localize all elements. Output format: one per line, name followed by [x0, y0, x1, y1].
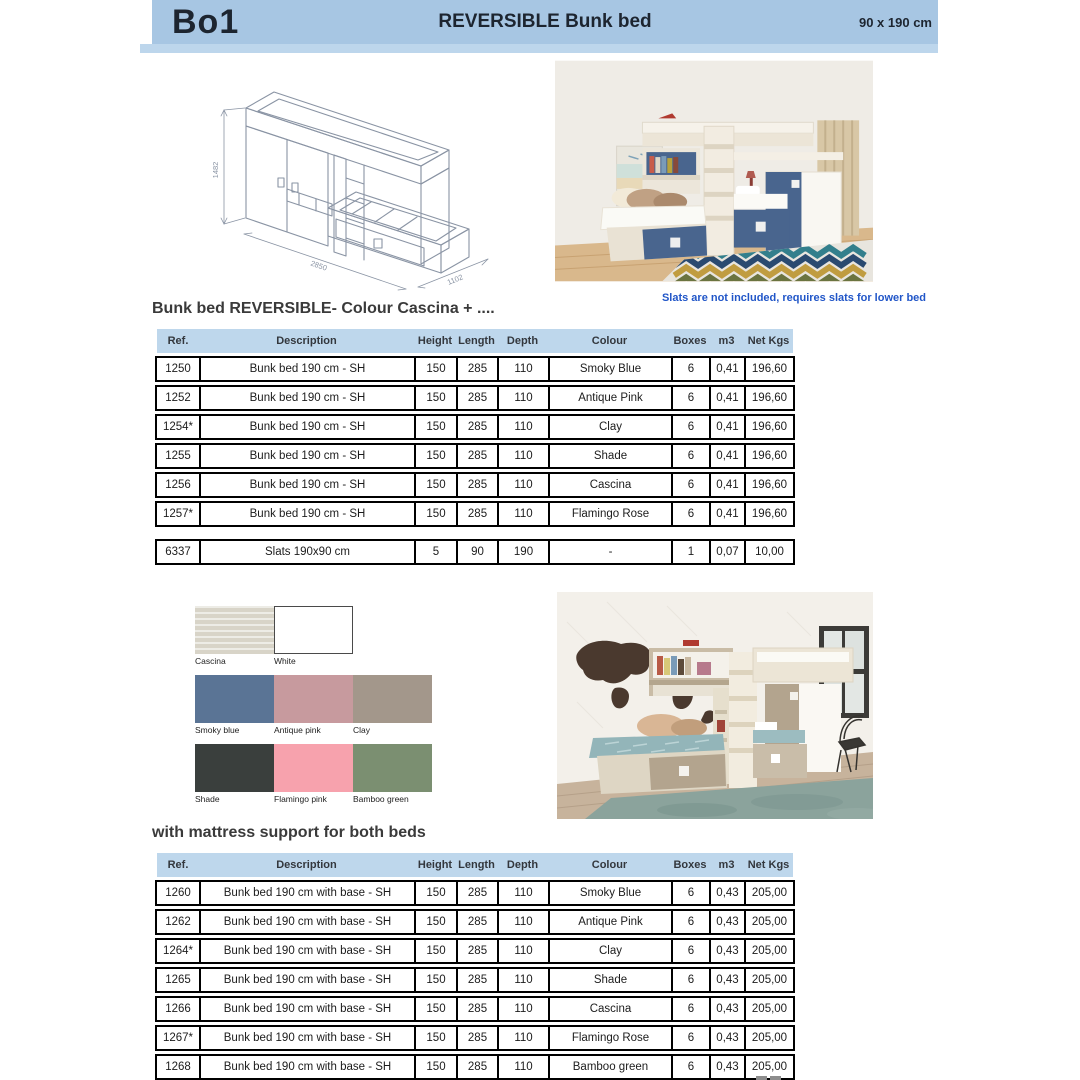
swatch-label: Antique pink [274, 725, 353, 735]
table-cell: Bunk bed 190 cm - SH [199, 445, 414, 467]
table-cell: Clay [548, 416, 671, 438]
table-cell: Bunk bed 190 cm - SH [199, 503, 414, 525]
table-cell: 0,43 [709, 1027, 744, 1049]
table-cell: 6 [671, 416, 709, 438]
dim-height-label: 1482 [211, 162, 220, 179]
table-cell: Flamingo Rose [548, 503, 671, 525]
swatch-row: Smoky blueAntique pinkClay [195, 675, 435, 735]
table-cell: 1262 [157, 911, 199, 933]
table-cell: 1252 [157, 387, 199, 409]
table-cell: 1254* [157, 416, 199, 438]
section-title-reversible: Bunk bed REVERSIBLE- Colour Cascina + ..… [152, 300, 495, 318]
swatch-color [274, 606, 353, 654]
table-cell: 90 [456, 541, 497, 563]
table-row: 1265Bunk bed 190 cm with base - SH150285… [155, 967, 795, 993]
column-header: Depth [497, 859, 548, 871]
table-cell: Bunk bed 190 cm with base - SH [199, 998, 414, 1020]
table-cell: 150 [414, 1056, 456, 1078]
section-title-mattress-support: with mattress support for both beds [152, 824, 426, 842]
column-header: Description [199, 859, 414, 871]
table-cell: 110 [497, 445, 548, 467]
table-row: 1267*Bunk bed 190 cm with base - SH15028… [155, 1025, 795, 1051]
table-row: 1260Bunk bed 190 cm with base - SH150285… [155, 880, 795, 906]
table-row: 1250Bunk bed 190 cm - SH150285110Smoky B… [155, 356, 795, 382]
product-photo-room-clay [557, 592, 873, 819]
table-cell: 285 [456, 940, 497, 962]
column-header: Depth [497, 335, 548, 347]
table-cell: 196,60 [744, 503, 793, 525]
column-header: Colour [548, 859, 671, 871]
table-cell: 110 [497, 474, 548, 496]
swatch-color [195, 744, 274, 792]
header-bar: Bo1 REVERSIBLE Bunk bed 90 x 190 cm [152, 0, 938, 44]
column-header: Boxes [671, 859, 709, 871]
swatch-bamboo-green: Bamboo green [353, 744, 432, 804]
table-cell: 6 [671, 969, 709, 991]
table-cell: 6 [671, 387, 709, 409]
table-cell: 150 [414, 503, 456, 525]
column-header: Length [456, 335, 497, 347]
column-header: Height [414, 859, 456, 871]
table-cell: 150 [414, 940, 456, 962]
column-header: Ref. [157, 335, 199, 347]
swatch-cascina: Cascina [195, 606, 274, 666]
column-header: Ref. [157, 859, 199, 871]
table-cell: 285 [456, 998, 497, 1020]
table-cell: 0,41 [709, 387, 744, 409]
swatch-clay: Clay [353, 675, 432, 735]
table-cell: Bunk bed 190 cm with base - SH [199, 882, 414, 904]
table-cell: Bamboo green [548, 1056, 671, 1078]
table-cell: Cascina [548, 474, 671, 496]
swatch-label: Bamboo green [353, 794, 432, 804]
table-cell: 1268 [157, 1056, 199, 1078]
table-cell: 6 [671, 998, 709, 1020]
table-gap [155, 527, 797, 536]
table-row: 1255Bunk bed 190 cm - SH150285110Shade60… [155, 443, 795, 469]
table-cell: 6 [671, 474, 709, 496]
table-row: 1264*Bunk bed 190 cm with base - SH15028… [155, 938, 795, 964]
table-row: 6337Slats 190x90 cm590190-10,0710,00 [155, 539, 795, 565]
table-cell: 205,00 [744, 940, 793, 962]
swatch-shade: Shade [195, 744, 274, 804]
table-cell: 110 [497, 387, 548, 409]
swatch-label: Smoky blue [195, 725, 274, 735]
table-cell: 110 [497, 1027, 548, 1049]
table-cell: Bunk bed 190 cm with base - SH [199, 969, 414, 991]
column-header: m3 [709, 859, 744, 871]
spec-table-with-base: Ref.DescriptionHeightLengthDepthColourBo… [155, 853, 797, 1080]
table-cell: 6337 [157, 541, 199, 563]
dim-length-label: 2850 [309, 259, 328, 273]
table-cell: 0,41 [709, 358, 744, 380]
swatch-label: Clay [353, 725, 432, 735]
swatch-color [195, 606, 274, 654]
table-cell: 285 [456, 416, 497, 438]
table-cell: 1 [671, 541, 709, 563]
swatch-label: Flamingo pink [274, 794, 353, 804]
page-title: REVERSIBLE Bunk bed [152, 11, 938, 33]
table-cell: 6 [671, 445, 709, 467]
colour-swatches: CascinaWhiteSmoky blueAntique pinkClaySh… [195, 606, 435, 813]
table-cell: 285 [456, 503, 497, 525]
table-cell: 1264* [157, 940, 199, 962]
table-cell: 150 [414, 911, 456, 933]
table-row: 1266Bunk bed 190 cm with base - SH150285… [155, 996, 795, 1022]
table-cell: 285 [456, 445, 497, 467]
table-cell: 6 [671, 882, 709, 904]
table-cell: Bunk bed 190 cm with base - SH [199, 1056, 414, 1078]
table-cell: 285 [456, 387, 497, 409]
column-header: Description [199, 335, 414, 347]
table-cell: 285 [456, 1027, 497, 1049]
table-cell: Antique Pink [548, 911, 671, 933]
table-cell: 110 [497, 940, 548, 962]
table-cell: - [548, 541, 671, 563]
table-cell: Bunk bed 190 cm - SH [199, 387, 414, 409]
table-cell: 1250 [157, 358, 199, 380]
table-cell: 190 [497, 541, 548, 563]
table-row: 1268Bunk bed 190 cm with base - SH150285… [155, 1054, 795, 1080]
table-cell: 110 [497, 969, 548, 991]
table-cell: 0,43 [709, 969, 744, 991]
swatch-smoky-blue: Smoky blue [195, 675, 274, 735]
table-cell: 196,60 [744, 416, 793, 438]
table-cell: 6 [671, 1056, 709, 1078]
table-cell: Slats 190x90 cm [199, 541, 414, 563]
swatch-row: ShadeFlamingo pinkBamboo green [195, 744, 435, 804]
table-cell: 1260 [157, 882, 199, 904]
table-cell: 150 [414, 474, 456, 496]
table-cell: 150 [414, 416, 456, 438]
table-cell: 6 [671, 358, 709, 380]
column-header: Net Kgs [744, 335, 793, 347]
swatch-label: Shade [195, 794, 274, 804]
table-cell: 205,00 [744, 998, 793, 1020]
table-row: 1257*Bunk bed 190 cm - SH150285110Flamin… [155, 501, 795, 527]
table-row: 1256Bunk bed 190 cm - SH150285110Cascina… [155, 472, 795, 498]
table-cell: 150 [414, 445, 456, 467]
table-cell: 285 [456, 358, 497, 380]
table-cell: Shade [548, 445, 671, 467]
table-cell: Bunk bed 190 cm - SH [199, 474, 414, 496]
table-cell: Shade [548, 969, 671, 991]
table-cell: 196,60 [744, 445, 793, 467]
product-photo-room-blue [555, 60, 873, 282]
table-row: 1254*Bunk bed 190 cm - SH150285110Clay60… [155, 414, 795, 440]
table-cell: Flamingo Rose [548, 1027, 671, 1049]
table-cell: Bunk bed 190 cm with base - SH [199, 1027, 414, 1049]
swatch-color [353, 675, 432, 723]
table-cell: 110 [497, 882, 548, 904]
swatch-color [274, 675, 353, 723]
column-header: Height [414, 335, 456, 347]
table-cell: 1265 [157, 969, 199, 991]
swatch-flamingo-pink: Flamingo pink [274, 744, 353, 804]
table-cell: 205,00 [744, 882, 793, 904]
table-cell: 1255 [157, 445, 199, 467]
bed-size: 90 x 190 cm [859, 15, 938, 30]
table-cell: 110 [497, 1056, 548, 1078]
table-cell: 285 [456, 911, 497, 933]
table-cell: 285 [456, 1056, 497, 1078]
table-cell: 285 [456, 882, 497, 904]
table-cell: 150 [414, 387, 456, 409]
table-cell: 150 [414, 969, 456, 991]
table-cell: 6 [671, 503, 709, 525]
table-cell: Smoky Blue [548, 882, 671, 904]
table-cell: 6 [671, 911, 709, 933]
table-cell: 0,43 [709, 998, 744, 1020]
table-cell: 205,00 [744, 1027, 793, 1049]
column-header: m3 [709, 335, 744, 347]
table-cell: 150 [414, 882, 456, 904]
table-row: 1262Bunk bed 190 cm with base - SH150285… [155, 909, 795, 935]
table-cell: 205,00 [744, 969, 793, 991]
swatch-antique-pink: Antique pink [274, 675, 353, 735]
table-cell: 285 [456, 969, 497, 991]
table-cell: 110 [497, 416, 548, 438]
table-cell: Bunk bed 190 cm with base - SH [199, 940, 414, 962]
swatch-label: White [274, 656, 353, 666]
swatch-label: Cascina [195, 656, 274, 666]
table-cell: 0,41 [709, 445, 744, 467]
table-cell: 0,41 [709, 416, 744, 438]
table-row: 1252Bunk bed 190 cm - SH150285110Antique… [155, 385, 795, 411]
table-cell: 196,60 [744, 358, 793, 380]
table-cell: 1266 [157, 998, 199, 1020]
table-cell: 150 [414, 998, 456, 1020]
spec-sheet-page: Bo1 REVERSIBLE Bunk bed 90 x 190 cm [0, 0, 1080, 1080]
table-cell: 110 [497, 358, 548, 380]
swatch-white: White [274, 606, 353, 666]
table-cell: Cascina [548, 998, 671, 1020]
table-header-row: Ref.DescriptionHeightLengthDepthColourBo… [157, 329, 793, 353]
table-cell: 150 [414, 1027, 456, 1049]
table-cell: 0,41 [709, 503, 744, 525]
table-cell: 10,00 [744, 541, 793, 563]
table-cell: Bunk bed 190 cm - SH [199, 358, 414, 380]
table-cell: 110 [497, 998, 548, 1020]
table-cell: 285 [456, 474, 497, 496]
header-underline [140, 44, 938, 53]
table-cell: 110 [497, 911, 548, 933]
table-cell: Clay [548, 940, 671, 962]
table-cell: 6 [671, 940, 709, 962]
column-header: Colour [548, 335, 671, 347]
table-cell: 0,07 [709, 541, 744, 563]
swatch-color [195, 675, 274, 723]
table-cell: Antique Pink [548, 387, 671, 409]
table-cell: Smoky Blue [548, 358, 671, 380]
column-header: Net Kgs [744, 859, 793, 871]
table-cell: 0,41 [709, 474, 744, 496]
table-cell: Bunk bed 190 cm - SH [199, 416, 414, 438]
table-cell: 1256 [157, 474, 199, 496]
table-cell: 1257* [157, 503, 199, 525]
table-cell: 5 [414, 541, 456, 563]
swatch-color [353, 744, 432, 792]
column-header: Boxes [671, 335, 709, 347]
technical-drawing: 1482 2850 1102 [166, 56, 504, 292]
table-cell: 196,60 [744, 474, 793, 496]
swatch-row: CascinaWhite [195, 606, 435, 666]
swatch-color [274, 744, 353, 792]
table-cell: 110 [497, 503, 548, 525]
table-header-row: Ref.DescriptionHeightLengthDepthColourBo… [157, 853, 793, 877]
table-cell: 205,00 [744, 911, 793, 933]
table-cell: 0,43 [709, 882, 744, 904]
spec-table-reversible: Ref.DescriptionHeightLengthDepthColourBo… [155, 329, 797, 565]
table-cell: 6 [671, 1027, 709, 1049]
table-cell: 0,43 [709, 1056, 744, 1078]
slats-note: Slats are not included, requires slats f… [652, 292, 936, 306]
partial-logo [756, 1076, 781, 1080]
table-cell: 1267* [157, 1027, 199, 1049]
table-cell: 0,43 [709, 911, 744, 933]
table-cell: 0,43 [709, 940, 744, 962]
table-cell: Bunk bed 190 cm with base - SH [199, 911, 414, 933]
table-cell: 196,60 [744, 387, 793, 409]
table-cell: 205,00 [744, 1056, 793, 1078]
table-cell: 150 [414, 358, 456, 380]
column-header: Length [456, 859, 497, 871]
